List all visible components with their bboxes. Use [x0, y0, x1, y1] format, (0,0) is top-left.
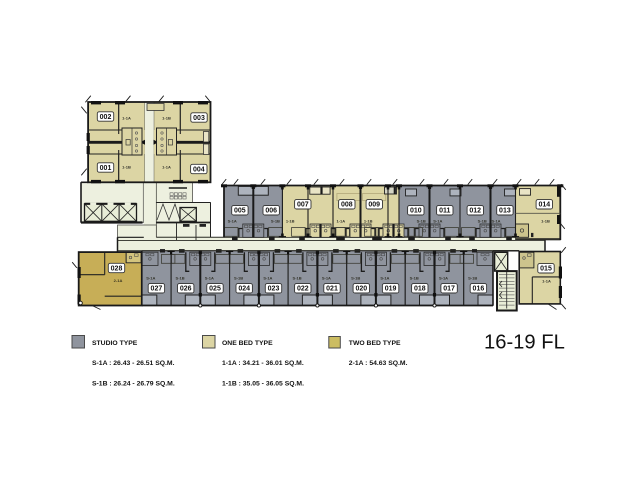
- svg-text:2-1A : 54.63 SQ.M.: 2-1A : 54.63 SQ.M.: [349, 360, 408, 367]
- svg-text:011: 011: [439, 208, 450, 215]
- svg-text:1-1B: 1-1B: [122, 165, 131, 170]
- svg-text:012: 012: [469, 208, 481, 215]
- svg-text:025: 025: [209, 286, 221, 293]
- svg-text:ONE BED TYPE: ONE BED TYPE: [222, 340, 273, 347]
- svg-text:019: 019: [385, 286, 397, 293]
- svg-text:S-1B: S-1B: [351, 275, 360, 280]
- svg-text:S-1B: S-1B: [478, 218, 487, 223]
- svg-text:023: 023: [268, 286, 280, 293]
- svg-text:027: 027: [151, 286, 163, 293]
- svg-text:S-1B: S-1B: [271, 218, 280, 223]
- svg-text:006: 006: [265, 208, 277, 215]
- svg-text:S-1A: S-1A: [205, 275, 214, 280]
- svg-text:005: 005: [234, 208, 246, 215]
- svg-text:S-1B: S-1B: [410, 275, 419, 280]
- svg-text:004: 004: [193, 166, 205, 173]
- svg-text:003: 003: [193, 115, 205, 122]
- svg-text:S-1B : 26.24 - 26.79 SQ.M.: S-1B : 26.24 - 26.79 SQ.M.: [92, 380, 175, 387]
- svg-text:022: 022: [297, 286, 309, 293]
- svg-text:TWO BED TYPE: TWO BED TYPE: [349, 340, 401, 347]
- svg-text:1-1B: 1-1B: [286, 218, 295, 223]
- svg-text:009: 009: [368, 202, 380, 209]
- svg-text:1-1A: 1-1A: [336, 218, 345, 223]
- svg-text:016: 016: [473, 286, 485, 293]
- svg-text:017: 017: [443, 286, 455, 293]
- svg-text:S-1A: S-1A: [439, 275, 448, 280]
- svg-text:028: 028: [111, 265, 123, 272]
- svg-text:S-1B: S-1B: [234, 275, 243, 280]
- svg-text:2-1A: 2-1A: [114, 278, 123, 283]
- svg-text:16-19 FL: 16-19 FL: [484, 332, 565, 354]
- svg-text:S-1A: S-1A: [228, 218, 237, 223]
- svg-text:020: 020: [355, 286, 367, 293]
- svg-text:S-1A: S-1A: [380, 275, 389, 280]
- svg-text:S-1A: S-1A: [263, 275, 272, 280]
- svg-text:021: 021: [326, 286, 338, 293]
- svg-text:1-1A: 1-1A: [162, 165, 171, 170]
- svg-text:015: 015: [540, 266, 552, 273]
- svg-text:014: 014: [538, 202, 550, 209]
- svg-text:002: 002: [100, 114, 112, 121]
- svg-text:1-1A: 1-1A: [122, 116, 131, 121]
- svg-text:1-1B: 1-1B: [162, 116, 171, 121]
- svg-text:S-1A: S-1A: [322, 275, 331, 280]
- svg-text:001: 001: [100, 165, 112, 172]
- svg-text:1-1A: 1-1A: [542, 279, 551, 284]
- svg-text:S-1B: S-1B: [417, 218, 426, 223]
- svg-text:S-1A : 26.43 - 26.51 SQ.M.: S-1A : 26.43 - 26.51 SQ.M.: [92, 360, 175, 367]
- svg-text:007: 007: [297, 202, 309, 209]
- svg-text:026: 026: [180, 286, 192, 293]
- svg-text:S-1B: S-1B: [468, 275, 477, 280]
- svg-text:010: 010: [410, 208, 422, 215]
- svg-text:STUDIO TYPE: STUDIO TYPE: [92, 340, 138, 347]
- svg-text:024: 024: [238, 286, 250, 293]
- svg-text:008: 008: [341, 202, 353, 209]
- svg-text:S-1B: S-1B: [176, 275, 185, 280]
- svg-text:018: 018: [414, 286, 426, 293]
- svg-text:S-1A: S-1A: [146, 275, 155, 280]
- svg-text:S-1A: S-1A: [433, 218, 442, 223]
- svg-text:1-1B : 35.05 - 36.05 SQ.M.: 1-1B : 35.05 - 36.05 SQ.M.: [222, 380, 304, 387]
- svg-text:S-1A: S-1A: [491, 218, 500, 223]
- svg-text:013: 013: [499, 208, 511, 215]
- svg-text:1-1B: 1-1B: [541, 218, 550, 223]
- svg-text:1-1A : 34.21 - 36.01 SQ.M.: 1-1A : 34.21 - 36.01 SQ.M.: [222, 360, 304, 367]
- svg-text:S-1B: S-1B: [293, 275, 302, 280]
- svg-text:1-1B: 1-1B: [364, 218, 373, 223]
